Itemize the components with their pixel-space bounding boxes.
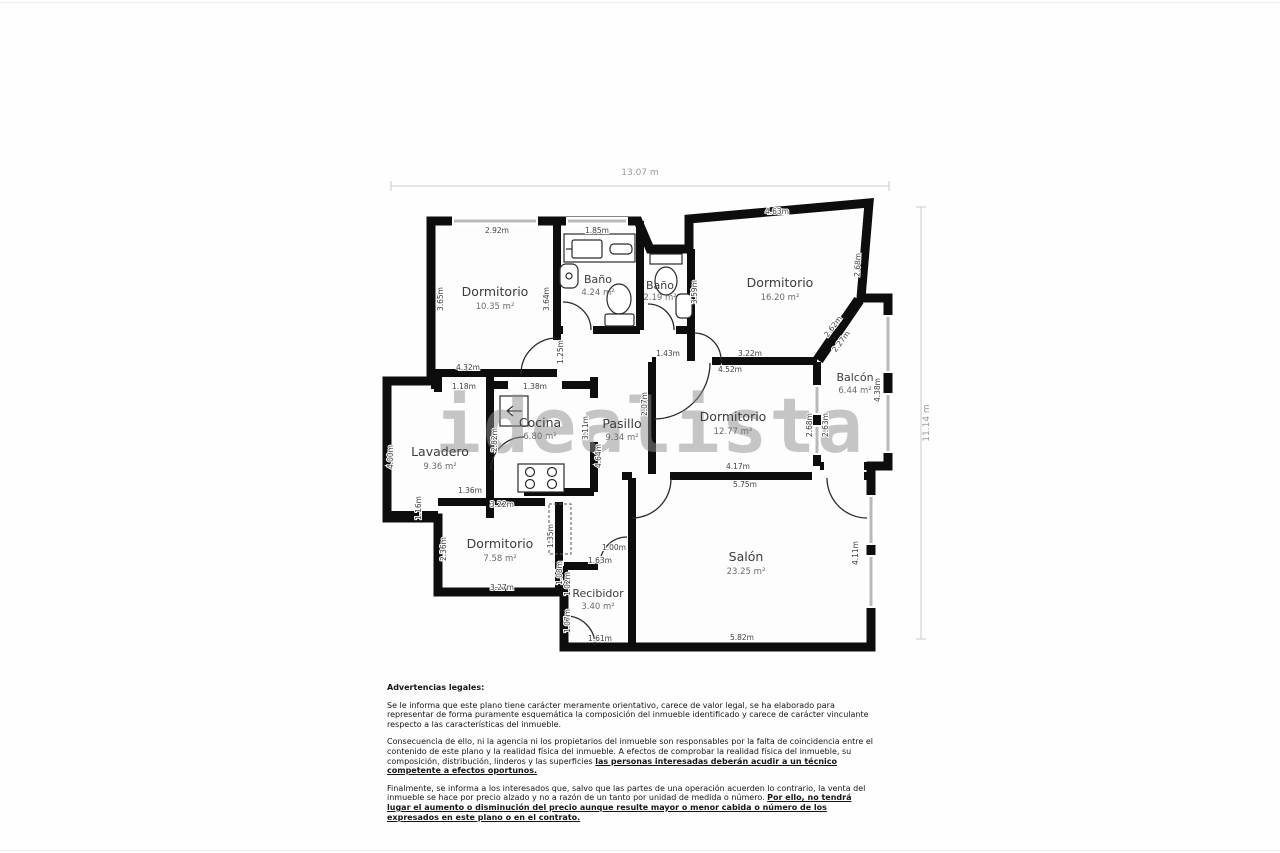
legal-paragraph-1: Se le informa que este plano tiene carác… xyxy=(387,701,875,730)
room-area-bano-b: 2.19 m² xyxy=(643,293,676,303)
room-label-salon: Salón xyxy=(729,549,764,564)
room-label-dormitorio-d: Dormitorio xyxy=(700,409,767,424)
room-label-bano-b: Baño xyxy=(646,279,674,292)
bottom-border-line xyxy=(0,850,1280,851)
dim-label: 1.00m xyxy=(602,543,626,552)
dim-label: 1.43m xyxy=(656,349,680,358)
legal-notices: Advertencias legales: Se le informa que … xyxy=(387,683,875,830)
dim-label: 1.18m xyxy=(452,382,476,391)
room-label-recibidor: Recibidor xyxy=(572,587,624,600)
dim-label: 2.92m xyxy=(485,226,509,235)
room-area-lavadero: 9.36 m² xyxy=(423,462,456,472)
dim-label: 3.11m xyxy=(581,416,590,440)
room-area-pasillo: 9.34 m² xyxy=(605,433,638,443)
dim-label: 1.25m xyxy=(556,340,565,364)
dim-label: 3.22m xyxy=(738,349,762,358)
dim-label: 2.63m xyxy=(821,413,830,437)
dim-label: 3.64m xyxy=(542,287,551,311)
sink-basin xyxy=(572,240,602,258)
room-label-dormitorio-b: Dormitorio xyxy=(467,536,534,551)
room-area-bano-a: 4.24 m² xyxy=(581,288,614,298)
dim-label: 4.64m xyxy=(594,444,603,468)
overall-width-label: 13.07 m xyxy=(621,168,658,178)
dim-label: 3.59m xyxy=(690,280,699,304)
room-area-salon: 23.25 m² xyxy=(727,567,766,577)
soap-tray xyxy=(610,244,632,254)
room-area-dormitorio-a: 10.35 m² xyxy=(476,302,515,312)
room-area-recibidor: 3.40 m² xyxy=(581,602,614,612)
room-area-dormitorio-d: 12.77 m² xyxy=(714,427,753,437)
dim-label: 3.22m xyxy=(490,500,514,509)
room-label-cocina: Cocina xyxy=(519,415,561,430)
legal-p1-text: Se le informa que este plano tiene carác… xyxy=(387,701,869,729)
dim-label: 4.17m xyxy=(726,462,750,471)
burner-icon xyxy=(526,480,535,489)
top-border-line xyxy=(0,2,1280,3)
dim-label: 4.11m xyxy=(851,541,860,565)
room-label-pasillo: Pasillo xyxy=(602,416,641,431)
dim-label: 4.38m xyxy=(873,378,882,402)
dim-label: 1.38m xyxy=(523,382,547,391)
legal-paragraph-3: Finalmente, se informa a los interesados… xyxy=(387,784,875,822)
room-area-dormitorio-c: 16.20 m² xyxy=(761,293,800,303)
idealista-watermark: idealista xyxy=(435,381,865,470)
overall-height-label: 11.14 m xyxy=(922,404,932,441)
dim-label: 4.52m xyxy=(718,365,742,374)
dim-label: 5.82m xyxy=(730,633,754,642)
dim-label: 2.07m xyxy=(640,392,649,416)
dim-label: 1.07m xyxy=(563,609,572,633)
floor-plan-page: 13.07 m 11.14 m xyxy=(0,0,1280,853)
room-area-balcon: 6.44 m² xyxy=(838,386,871,396)
dim-label: 1.36m xyxy=(458,486,482,495)
room-label-balcon: Balcón xyxy=(836,371,873,384)
dim-label: 2.68m xyxy=(805,413,814,437)
dim-label: 1.35m xyxy=(546,524,555,548)
top-dimension-line xyxy=(391,181,889,191)
toilet-b-tank xyxy=(650,254,682,264)
room-area-dormitorio-b: 7.58 m² xyxy=(483,554,516,564)
toilet-a-tank xyxy=(605,314,634,326)
dim-label: 5.75m xyxy=(733,480,757,489)
room-label-bano-a: Baño xyxy=(584,273,612,286)
dim-label: 3.65m xyxy=(436,287,445,311)
wall-sink-drain xyxy=(566,273,572,279)
room-label-lavadero: Lavadero xyxy=(411,444,469,459)
room-label-dormitorio-a: Dormitorio xyxy=(462,284,529,299)
dim-label: 4.32m xyxy=(456,363,480,372)
burner-icon xyxy=(548,480,557,489)
dim-label: 4.00m xyxy=(386,445,395,469)
dim-label: 2.82m xyxy=(490,428,499,452)
room-label-dormitorio-c: Dormitorio xyxy=(747,275,814,290)
dim-label: 2.68m xyxy=(852,253,862,277)
room-area-cocina: 6.80 m² xyxy=(523,432,556,442)
dim-label: 1.85m xyxy=(585,226,609,235)
dim-label: 3.27m xyxy=(490,583,514,592)
dim-label: 1.02m xyxy=(563,572,572,596)
dim-label: 1.63m xyxy=(588,556,612,565)
dim-label: 1.61m xyxy=(588,634,612,643)
dim-label: 2.36m xyxy=(439,537,448,561)
legal-paragraph-2: Consecuencia de ello, ni la agencia ni l… xyxy=(387,737,875,775)
dim-label: 4.63m xyxy=(765,207,789,216)
legal-heading: Advertencias legales: xyxy=(387,683,875,693)
dim-label: 1.16m xyxy=(414,496,423,520)
